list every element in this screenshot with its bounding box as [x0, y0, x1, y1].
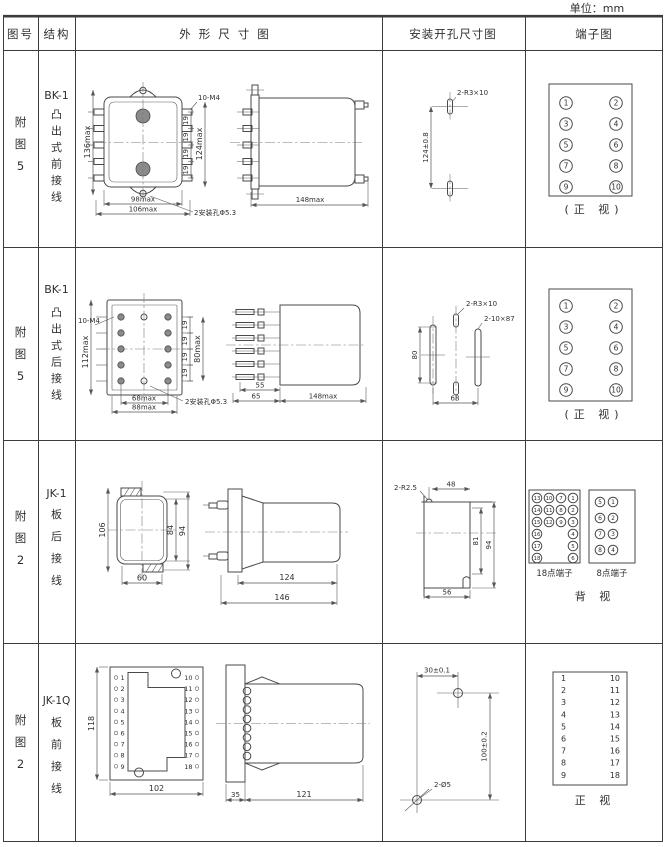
terminal-number: 7: [564, 365, 569, 374]
header-terminal: 端子图: [575, 27, 613, 41]
terminal-number: 12: [610, 698, 620, 707]
terminal-point: 2: [561, 686, 566, 695]
terminal-number: 10: [610, 674, 620, 683]
terminal-point: 8: [561, 759, 566, 768]
terminal-number: 5: [564, 141, 569, 150]
struct-char: 接: [51, 552, 62, 565]
terminal-number: 13: [534, 496, 541, 502]
terminal-point: 7: [560, 160, 573, 173]
dim-pitch: 19: [182, 149, 190, 158]
model-label: BK-1: [44, 89, 69, 102]
row1-install-view: 124±0.8 2-R3×10: [422, 89, 488, 203]
terminal-point: 3: [608, 529, 618, 539]
terminal-number: 15: [534, 520, 541, 526]
pin: 11: [184, 685, 199, 693]
terminal-caption: 正 视: [575, 793, 616, 807]
pin: 17: [184, 752, 199, 760]
struct-char: 出: [51, 124, 62, 138]
terminal-point: 4: [608, 545, 618, 555]
terminal-18-label: 18点端子: [536, 568, 573, 579]
terminal-number: 10: [611, 386, 621, 395]
terminal-point: 5: [560, 342, 573, 355]
terminal-number: 1: [564, 99, 569, 108]
thread-note: 10-M4: [198, 94, 220, 102]
terminal-number: 10: [611, 183, 621, 192]
struct-char: 后: [51, 356, 62, 369]
terminal-number: 2: [614, 302, 619, 311]
row3-fig-cell: 附 图 2: [15, 509, 27, 567]
row1-terminal-view: 13579 246810 (正 视): [549, 84, 632, 216]
row1-structure-cell: BK-1 凸 出 式 前 接 线: [44, 89, 69, 204]
fig-char: 附: [15, 713, 27, 727]
terminal-number: 9: [561, 771, 566, 780]
terminal-point: 5: [568, 541, 578, 551]
dim-width-bottom: 56: [443, 589, 452, 597]
header-install-dims: 安装开孔尺寸图: [409, 27, 497, 41]
terminal-number: 17: [610, 759, 620, 768]
pin: 6: [114, 730, 124, 738]
terminal-number: 11: [546, 508, 553, 514]
terminal-point: 1: [608, 497, 618, 507]
pin: 9: [114, 763, 124, 771]
mounting-holes-note: 2安装孔Φ5.3: [185, 397, 227, 406]
row4-install-view: 30±0.1 100±0.2 2-Ø5: [400, 667, 499, 814]
struct-char: 出: [51, 322, 62, 336]
struct-char: 线: [51, 781, 62, 795]
pin: 13: [184, 707, 199, 715]
row4-outline-front-view: 123456789 101112131415161718 118 102: [87, 667, 203, 796]
flange-bolts: [203, 501, 228, 560]
dim-height: 136max: [83, 125, 92, 158]
dim-pitch: 19: [182, 133, 190, 142]
row2-outline-front-view: 112max 10-M4 19 19 19 19 80max 68max 88m…: [78, 293, 227, 414]
fig-char: 图: [15, 735, 27, 749]
row2-terminal-view: 13579 246810 (正 视): [549, 289, 632, 421]
terminal-point: 8: [556, 505, 566, 515]
mounting-hole: [135, 768, 144, 777]
pin-number: 13: [184, 707, 192, 715]
relay-body-side: [263, 503, 340, 562]
row2-fig-cell: 附 图 5: [15, 325, 27, 383]
pin-number: 7: [121, 741, 125, 749]
terminal-point: 8: [610, 363, 623, 376]
struct-char: 接: [51, 760, 62, 773]
terminal-8-label: 8点端子: [597, 568, 628, 579]
terminal-point: 13: [532, 493, 542, 503]
struct-char: 凸: [51, 108, 62, 121]
pin-number: 6: [121, 730, 125, 738]
terminal-number: 14: [610, 722, 620, 731]
struct-char: 线: [51, 573, 62, 587]
terminal-point: 3: [561, 698, 566, 707]
terminal-point: 11: [544, 505, 554, 515]
pin: 5: [114, 718, 124, 726]
slot-note2: 2-10×87: [484, 315, 515, 323]
row3-outline-side-view: 124 146: [203, 489, 348, 605]
row4-structure-cell: JK-1Q 板 前 接 线: [42, 695, 71, 795]
dim-width: 48: [447, 481, 456, 489]
dim-height-inner: 84: [166, 525, 175, 535]
row1-fig-cell: 附 图 5: [15, 115, 27, 173]
struct-char: 式: [51, 339, 62, 352]
terminal-point: 7: [561, 747, 566, 756]
dim-width: 102: [149, 784, 164, 793]
terminal-point: 7: [556, 493, 566, 503]
fig-char: 附: [15, 115, 27, 129]
terminal-point: 10: [610, 384, 623, 397]
pin: 14: [184, 718, 199, 726]
dim-pitch: 19: [181, 337, 189, 346]
row3: 附 图 2 JK-1 板 后 接 线 106 84 94: [15, 481, 635, 606]
model-label: JK-1Q: [42, 695, 71, 707]
terminal-number: 10: [546, 496, 553, 502]
fig-char: 2: [17, 553, 24, 567]
unit-label: 单位：mm: [570, 1, 624, 15]
terminal-number: 14: [534, 508, 541, 514]
terminal-point: 12: [544, 517, 554, 527]
drawing-canvas: 单位：mm 图号 结构 外形尺寸图 安装开孔尺寸图 端子图 附 图 5 BK-1…: [0, 0, 666, 847]
terminal-point: 14: [610, 722, 620, 731]
model-label: JK-1: [45, 487, 66, 500]
fig-char: 图: [15, 531, 27, 545]
terminal-point: 16: [532, 529, 542, 539]
pin-number: 11: [184, 685, 192, 693]
dim-hole-height: 100±0.2: [481, 731, 489, 761]
terminal-left-column: 13579: [560, 97, 573, 194]
terminal-point: 2: [610, 97, 623, 110]
terminal-point: 6: [595, 513, 605, 523]
terminal-point: 13: [610, 710, 620, 719]
pin-number: 15: [184, 730, 192, 738]
row4-fig-cell: 附 图 2: [15, 713, 27, 771]
t8-col-right: 1234: [608, 497, 618, 555]
terminal-point: 3: [560, 118, 573, 131]
terminal-number: 3: [571, 520, 575, 526]
fig-char: 附: [15, 325, 27, 339]
terminal-number: 1: [571, 496, 575, 502]
header-fig-no: 图号: [7, 27, 34, 41]
terminal-point: 6: [561, 735, 566, 744]
row1: 附 图 5 BK-1 凸 出 式 前 接 线: [15, 82, 632, 217]
dim-width-outer: 106max: [129, 206, 158, 214]
pin: 18: [184, 763, 199, 771]
row4: 附 图 2 JK-1Q 板 前 接 线 123456789 1011121314…: [15, 665, 627, 813]
inner-module-outline: [128, 673, 185, 772]
terminal-number: 1: [561, 674, 566, 683]
terminal-number: 16: [534, 532, 541, 538]
struct-char: 线: [51, 388, 62, 402]
dim-depth: 148max: [296, 196, 325, 204]
terminal-point: 6: [568, 553, 578, 563]
terminal-number: 5: [571, 544, 575, 550]
terminal-point: 6: [610, 342, 623, 355]
terminal-caption: 背 视: [575, 589, 616, 603]
row3-install-view: 2-R2.5 48 81 94 56: [394, 481, 496, 600]
flange-plate: [228, 489, 242, 572]
struct-char: 板: [51, 715, 62, 729]
terminal-point: 9: [556, 517, 566, 527]
terminal-point: 2: [568, 505, 578, 515]
terminal-point: 10: [610, 181, 623, 194]
dim-stud-b: 65: [252, 393, 261, 401]
dim-depth-b: 121: [296, 790, 311, 799]
terminal-number: 8: [561, 759, 566, 768]
terminal-number: 4: [571, 532, 575, 538]
dim-pitch: 19: [182, 116, 190, 125]
pin: 10: [184, 674, 199, 682]
row1-outline-front-view: 136max 19 19 19 19 124max 10-M4 98max 10…: [83, 82, 236, 217]
fig-char: 5: [17, 369, 24, 383]
model-label: BK-1: [44, 283, 69, 296]
terminal-number: 18: [534, 556, 541, 562]
dim-hole-width: 30±0.1: [424, 667, 450, 675]
fig-char: 5: [17, 159, 24, 173]
terminal-number: 5: [598, 499, 602, 506]
pin-number: 2: [121, 685, 125, 693]
terminal-number: 2: [614, 99, 619, 108]
row3-terminal-view: 131415161718 101112 789 123456 5678 1234…: [529, 490, 635, 603]
terminal-point: 8: [595, 545, 605, 555]
terminal-number: 6: [614, 141, 619, 150]
dim-height-outer: 94: [485, 540, 493, 549]
slot-note: 2-R3×10: [457, 89, 488, 97]
dim-pitch: 19: [181, 353, 189, 362]
terminal-left-column: 13579: [560, 300, 573, 397]
terminal-point: 4: [561, 710, 566, 719]
t18-col-1: 101112: [544, 493, 554, 527]
terminal-right-column: 246810: [610, 300, 623, 397]
terminal-number: 11: [610, 686, 620, 695]
row2-outline-side-view: 55 65 148max: [226, 305, 366, 403]
terminal-number: 6: [614, 344, 619, 353]
terminal-number: 6: [561, 735, 566, 744]
terminal-number: 3: [611, 531, 615, 538]
pin-number: 1: [121, 674, 125, 682]
pin: 12: [184, 696, 199, 704]
terminal-number: 4: [614, 120, 619, 129]
dim-hole-pitch: 124±0.8: [422, 132, 430, 162]
pin: 15: [184, 730, 199, 738]
terminal-point: 8: [610, 160, 623, 173]
pin-number: 4: [121, 707, 125, 715]
struct-char: 接: [51, 174, 62, 187]
terminal-number: 17: [534, 544, 541, 550]
terminal-point: 9: [560, 181, 573, 194]
terminal-number: 8: [614, 365, 619, 374]
terminal-number: 1: [611, 499, 615, 506]
front-pins-right: 101112131415161718: [184, 674, 199, 771]
terminal-point: 7: [595, 529, 605, 539]
terminal-point: 5: [560, 139, 573, 152]
terminal-number: 4: [614, 323, 619, 332]
dim-pitch: 19: [181, 321, 189, 330]
front-pins-left: 123456789: [114, 674, 124, 771]
pin-number: 16: [184, 741, 192, 749]
pin-number: 3: [121, 696, 125, 704]
terminal-right-column: 246810: [610, 97, 623, 194]
bottom-notch: [463, 577, 470, 588]
t8-col-left: 5678: [595, 497, 605, 555]
dim-height: 118: [87, 716, 96, 731]
pin: 7: [114, 741, 124, 749]
struct-char: 前: [51, 737, 62, 751]
terminal-point: 14: [532, 505, 542, 515]
dim-width-outer: 88max: [132, 404, 156, 412]
terminal-caption: (正 视): [564, 202, 623, 216]
pin: 8: [114, 752, 124, 760]
terminal-point: 2: [608, 513, 618, 523]
dim-pitch: 19: [181, 369, 189, 378]
terminal-number: 9: [559, 520, 563, 526]
terminal-number: 1: [564, 302, 569, 311]
dim-height-inner: 81: [472, 537, 480, 546]
terminal-point: 5: [595, 497, 605, 507]
terminal-number: 13: [610, 710, 620, 719]
terminal-point: 17: [532, 541, 542, 551]
terminal-point: 3: [560, 321, 573, 334]
terminal-caption: (正 视): [564, 407, 623, 421]
pin-number: 8: [121, 752, 125, 760]
pin-number: 17: [184, 752, 192, 760]
mounting-slot-long: [475, 329, 481, 386]
fig-char: 2: [17, 757, 24, 771]
row2: 附 图 5 BK-1 凸 出 式 后 接 线: [15, 283, 632, 421]
pin-number: 14: [184, 718, 192, 726]
struct-char: 接: [51, 372, 62, 385]
header-structure: 结构: [44, 27, 71, 41]
terminal-point: 17: [610, 759, 620, 768]
dim-height: 106: [98, 522, 107, 537]
dim-depth: 148max: [309, 393, 338, 401]
row4-outline-side-view: 35 121: [216, 665, 370, 802]
terminal-point: 9: [560, 384, 573, 397]
dim-height: 112max: [81, 335, 90, 368]
dim-depth: 124: [279, 573, 294, 582]
terminal-point: 16: [610, 747, 620, 756]
pin-number: 18: [184, 763, 192, 771]
terminal-left-list: 123456789: [561, 674, 566, 780]
terminal-number: 2: [571, 508, 575, 514]
terminal-number: 4: [611, 547, 615, 554]
pin-number: 9: [121, 763, 125, 771]
terminal-number: 7: [561, 747, 566, 756]
terminal-point: 10: [610, 674, 620, 683]
terminal-number: 3: [561, 698, 566, 707]
terminal-number: 3: [564, 120, 569, 129]
corner-note: 2-R2.5: [394, 484, 417, 492]
terminal-number: 7: [564, 162, 569, 171]
header-outline-dims: 外形尺寸图: [179, 27, 277, 41]
terminal-point: 10: [544, 493, 554, 503]
terminal-number: 5: [561, 722, 566, 731]
pin: 4: [114, 707, 124, 715]
dim-height-inner: 80max: [193, 335, 202, 363]
terminal-point: 1: [560, 97, 573, 110]
terminal-point: 9: [561, 771, 566, 780]
row4-terminal-view: 123456789 101112131415161718 正 视: [553, 672, 627, 807]
terminal-point: 15: [532, 517, 542, 527]
terminal-point: 4: [610, 321, 623, 334]
row3-outline-front-view: 106 84 94 60: [98, 481, 190, 585]
terminal-point: 5: [561, 722, 566, 731]
t18-col-3: 123456: [568, 493, 578, 563]
pin: 1: [114, 674, 124, 682]
side-terminal-studs: [237, 109, 259, 181]
dim-slot-height: 80: [411, 351, 419, 360]
terminal-number: 8: [598, 547, 602, 554]
slot-note: 2-R3×10: [466, 300, 497, 308]
terminal-box: [549, 289, 632, 401]
terminal-point: 6: [610, 139, 623, 152]
terminal-number: 16: [610, 747, 620, 756]
row2-install-view: 2-R3×10 2-10×87 80 68: [411, 300, 515, 405]
terminal-number: 4: [561, 710, 566, 719]
terminal-point: 15: [610, 735, 620, 744]
terminal-number: 6: [571, 556, 575, 562]
pin-number: 10: [184, 674, 192, 682]
fig-char: 图: [15, 347, 27, 361]
pin: 16: [184, 741, 199, 749]
terminal-right-list: 101112131415161718: [610, 674, 620, 780]
relay-body-side: [259, 98, 355, 186]
terminal-point: 3: [568, 517, 578, 527]
table-header: 图号 结构 外形尺寸图 安装开孔尺寸图 端子图: [7, 27, 613, 41]
terminal-point: 4: [610, 118, 623, 131]
terminal-point: 4: [568, 529, 578, 539]
row3-structure-cell: JK-1 板 后 接 线: [45, 487, 66, 587]
terminal-point: 7: [560, 363, 573, 376]
terminal-number: 12: [546, 520, 553, 526]
terminal-point: 1: [560, 300, 573, 313]
terminal-number: 8: [614, 162, 619, 171]
dim-width: 68max: [132, 395, 156, 403]
terminal-number: 2: [561, 686, 566, 695]
struct-char: 前: [51, 157, 62, 171]
long-studs: [232, 309, 280, 380]
pin: 2: [114, 685, 124, 693]
t18-col-2: 789: [556, 493, 566, 527]
terminal-number: 6: [598, 515, 602, 522]
terminal-point: 12: [610, 698, 620, 707]
t18-col-0: 131415161718: [532, 493, 542, 563]
row1-outline-side-view: 148max: [230, 85, 368, 207]
terminal-number: 9: [564, 386, 569, 395]
struct-char: 后: [51, 530, 62, 543]
pin-number: 12: [184, 696, 192, 704]
terminal-point: 18: [532, 553, 542, 563]
holes-note: 2-Ø5: [434, 781, 451, 789]
dim-depth-a: 35: [231, 791, 240, 799]
terminal-number: 3: [564, 323, 569, 332]
dim-slot-width: 68: [451, 395, 460, 403]
terminal-number: 15: [610, 735, 620, 744]
terminal-number: 2: [611, 515, 615, 522]
terminal-point: 1: [568, 493, 578, 503]
row2-structure-cell: BK-1 凸 出 式 后 接 线: [44, 283, 69, 402]
dim-stud-a: 55: [256, 382, 265, 390]
terminal-point: 11: [610, 686, 620, 695]
terminal-number: 9: [564, 183, 569, 192]
terminal-number: 18: [610, 771, 620, 780]
terminal-point: 1: [561, 674, 566, 683]
dim-width: 60: [137, 574, 147, 583]
pin-number: 5: [121, 718, 125, 726]
terminal-number: 8: [559, 508, 563, 514]
struct-char: 板: [51, 507, 62, 521]
terminal-point: 18: [610, 771, 620, 780]
struct-char: 式: [51, 141, 62, 154]
dim-height-inner: 124max: [195, 127, 204, 160]
